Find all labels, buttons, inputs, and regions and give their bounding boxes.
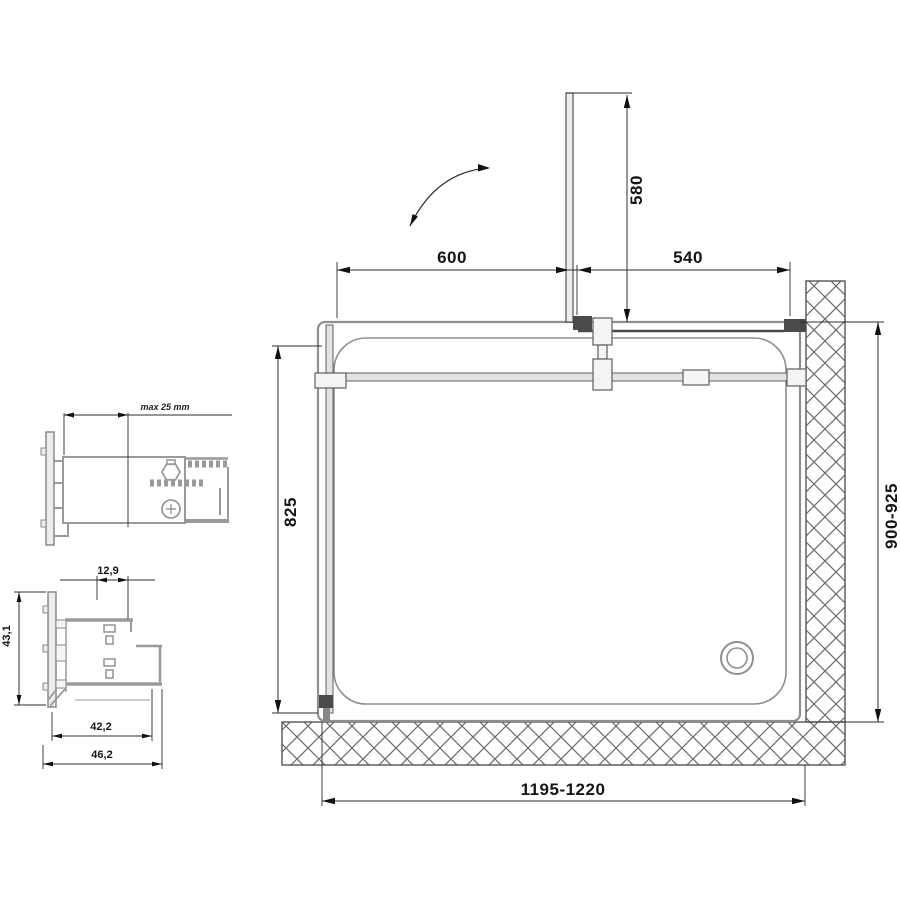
- right-wall: [806, 281, 845, 722]
- dim-top-600-540: 600 540: [337, 248, 790, 318]
- dim-left-825: 825: [272, 346, 322, 713]
- hinge-neck: [598, 345, 607, 359]
- wall-profile-bar: [46, 432, 54, 545]
- dim-540-label: 540: [673, 248, 703, 267]
- dim-12-9-label: 12,9: [97, 565, 118, 577]
- detail-wall-profile: max 25 mm: [41, 402, 232, 545]
- top-screen-glass: [333, 373, 787, 381]
- dim-580-label: 580: [627, 175, 646, 205]
- dim-43-1-label: 43,1: [1, 625, 13, 646]
- profile-hook-right: [136, 646, 162, 682]
- dim-max25-label: max 25 mm: [140, 402, 189, 412]
- drawing-canvas: 600 540 580 825 900-925 1195-1220: [0, 0, 900, 900]
- door-glass: [566, 93, 573, 322]
- swing-arrow-head-end: [478, 164, 490, 172]
- left-screen-foot: [319, 695, 333, 708]
- screw-upper: [104, 625, 115, 632]
- hex-screw: [162, 464, 180, 480]
- door-leaf-open: [566, 93, 592, 330]
- detail-bottom-profile: 12,9 43,1 42,2 46,2: [1, 565, 162, 769]
- technical-drawing: 600 540 580 825 900-925 1195-1220: [0, 0, 900, 900]
- dim-1195-1220-label: 1195-1220: [521, 780, 606, 799]
- bottom-wall-hatched: [282, 722, 845, 765]
- profile-right-edge: [220, 467, 228, 523]
- dim-600-label: 600: [437, 248, 467, 267]
- right-wall-hatched: [806, 281, 845, 722]
- hinge-lower: [593, 359, 612, 390]
- door-pivot-block: [573, 316, 592, 330]
- left-screen-foot-pin: [323, 708, 330, 722]
- wall-bracket-right: [787, 369, 806, 386]
- bottom-wall: [282, 722, 845, 765]
- dim-46-2-label: 46,2: [91, 749, 112, 761]
- shower-tray: [318, 322, 800, 721]
- dim-42-2-label: 42,2: [90, 721, 111, 733]
- tray-inner-rim: [334, 338, 786, 704]
- mid-screen-connector: [683, 370, 709, 385]
- left-screen-clamp: [315, 373, 346, 388]
- swing-arrow-head-start: [410, 214, 418, 226]
- swing-arc: [410, 168, 488, 226]
- wall-corner-bracket: [784, 319, 806, 332]
- dim-900-925-label: 900-925: [882, 483, 900, 549]
- profile-box: [66, 620, 162, 684]
- bottom-profile-bar: [48, 592, 56, 707]
- door-swing-arrow-icon: [410, 164, 490, 226]
- hinge-upper: [593, 318, 612, 345]
- dim-825-label: 825: [281, 497, 300, 527]
- dim-door-580: 580: [566, 93, 646, 322]
- screw-lower: [104, 659, 115, 666]
